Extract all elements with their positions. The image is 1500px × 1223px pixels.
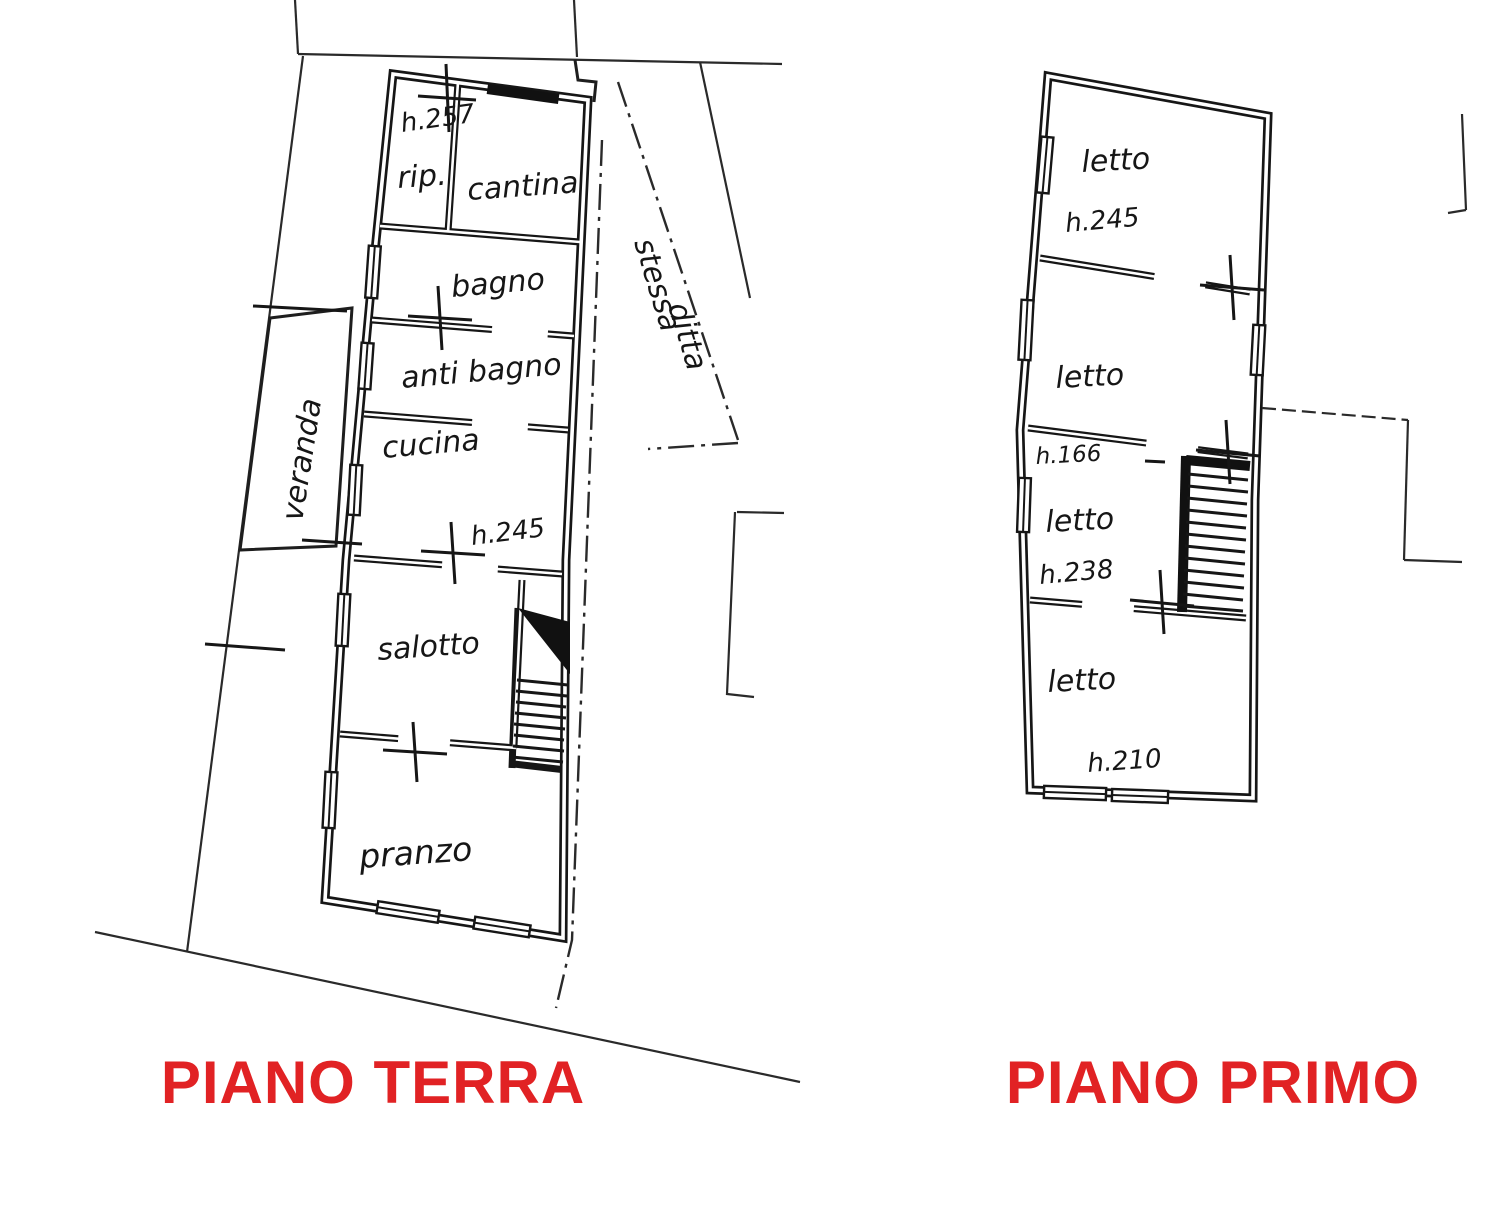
neighbor-bracket [727, 512, 784, 697]
floor-plan-sheet: h.257 rip. cantina bagno anti bagno cuci… [0, 0, 1500, 1223]
room-label-pranzo: pranzo [357, 829, 474, 876]
room-label-letto-4: letto [1047, 661, 1117, 700]
ground-floor-title: PIANO TERRA [138, 1048, 608, 1118]
height-note-cucina: h.245 [469, 513, 546, 552]
ground-floor-plan: h.257 rip. cantina bagno anti bagno cuci… [95, 0, 800, 1082]
ff-extension-lines [1262, 114, 1466, 562]
window-letto-4-bottom-2 [1112, 789, 1168, 803]
boundary-note-ditta: ditta [660, 298, 714, 375]
height-note-letto-1: h.245 [1064, 203, 1141, 239]
room-label-bagno: bagno [450, 262, 547, 305]
window-pranzo-left [323, 772, 338, 829]
boundary-top-vertical [295, 0, 298, 54]
room-label-salotto: salotto [376, 626, 481, 668]
ff-staircase [1182, 456, 1250, 612]
door-gap-antibagno [472, 415, 529, 433]
ff-stair-top-bar [1186, 460, 1250, 466]
door-gap-bagno [492, 321, 549, 339]
window-letto-2 [1018, 300, 1033, 361]
window-antibagno [358, 343, 373, 390]
boundary-top-vertical-2 [574, 0, 577, 57]
stair-treads [512, 680, 568, 762]
dashdot-corner [648, 443, 738, 449]
plans-drawing: h.257 rip. cantina bagno anti bagno cuci… [0, 0, 1500, 1223]
room-label-cucina: cucina [381, 423, 481, 466]
room-label-veranda: veranda [275, 396, 329, 523]
extension-vertical [1404, 420, 1408, 560]
room-label-rip: rip. [396, 158, 448, 196]
extension-far-right [1448, 114, 1466, 213]
door-gap-letto-2 [1145, 437, 1198, 457]
first-floor-title: PIANO PRIMO [988, 1048, 1438, 1118]
room-label-cantina: cantina [466, 165, 580, 208]
upper-note-letto-3: h.166 [1035, 441, 1102, 470]
ff-stair-left-wall [1182, 456, 1186, 612]
room-label-letto-1: letto [1081, 141, 1151, 180]
door-gap-cucina [442, 557, 499, 575]
window-bagno [365, 246, 381, 299]
boundary-right-diagonal [700, 62, 750, 298]
gf-wall-channel [325, 74, 588, 938]
window-right-wall [1251, 325, 1266, 376]
window-letto-4-bottom-1 [1044, 786, 1106, 800]
height-note-letto-4: h.210 [1086, 744, 1162, 779]
height-note-letto-3: h.238 [1038, 555, 1115, 591]
room-label-letto-2: letto [1055, 357, 1125, 396]
window-salotto [336, 594, 351, 647]
room-label-letto-3: letto [1045, 501, 1115, 540]
room-label-anti-bagno: anti bagno [400, 347, 563, 396]
window-letto-3 [1017, 478, 1031, 532]
height-note-rip: h.257 [399, 99, 477, 139]
boundary-top-horizontal [298, 54, 782, 64]
ff-stair-treads [1183, 474, 1248, 611]
extension-top [1262, 408, 1408, 420]
window-pranzo-bottom-1 [376, 901, 439, 923]
first-floor-plan: letto h.245 letto h.166 letto h.238 lett… [1017, 76, 1466, 803]
door-gap-letto-1 [1153, 269, 1207, 291]
door-gap-salotto [398, 733, 451, 751]
window-pranzo-bottom-2 [473, 917, 530, 938]
extension-bottom [1404, 560, 1462, 562]
window-cucina [348, 465, 363, 516]
gf-windows [323, 84, 560, 937]
gf-exterior-wall [325, 74, 588, 938]
door-gap-letto-4 [1081, 597, 1134, 615]
